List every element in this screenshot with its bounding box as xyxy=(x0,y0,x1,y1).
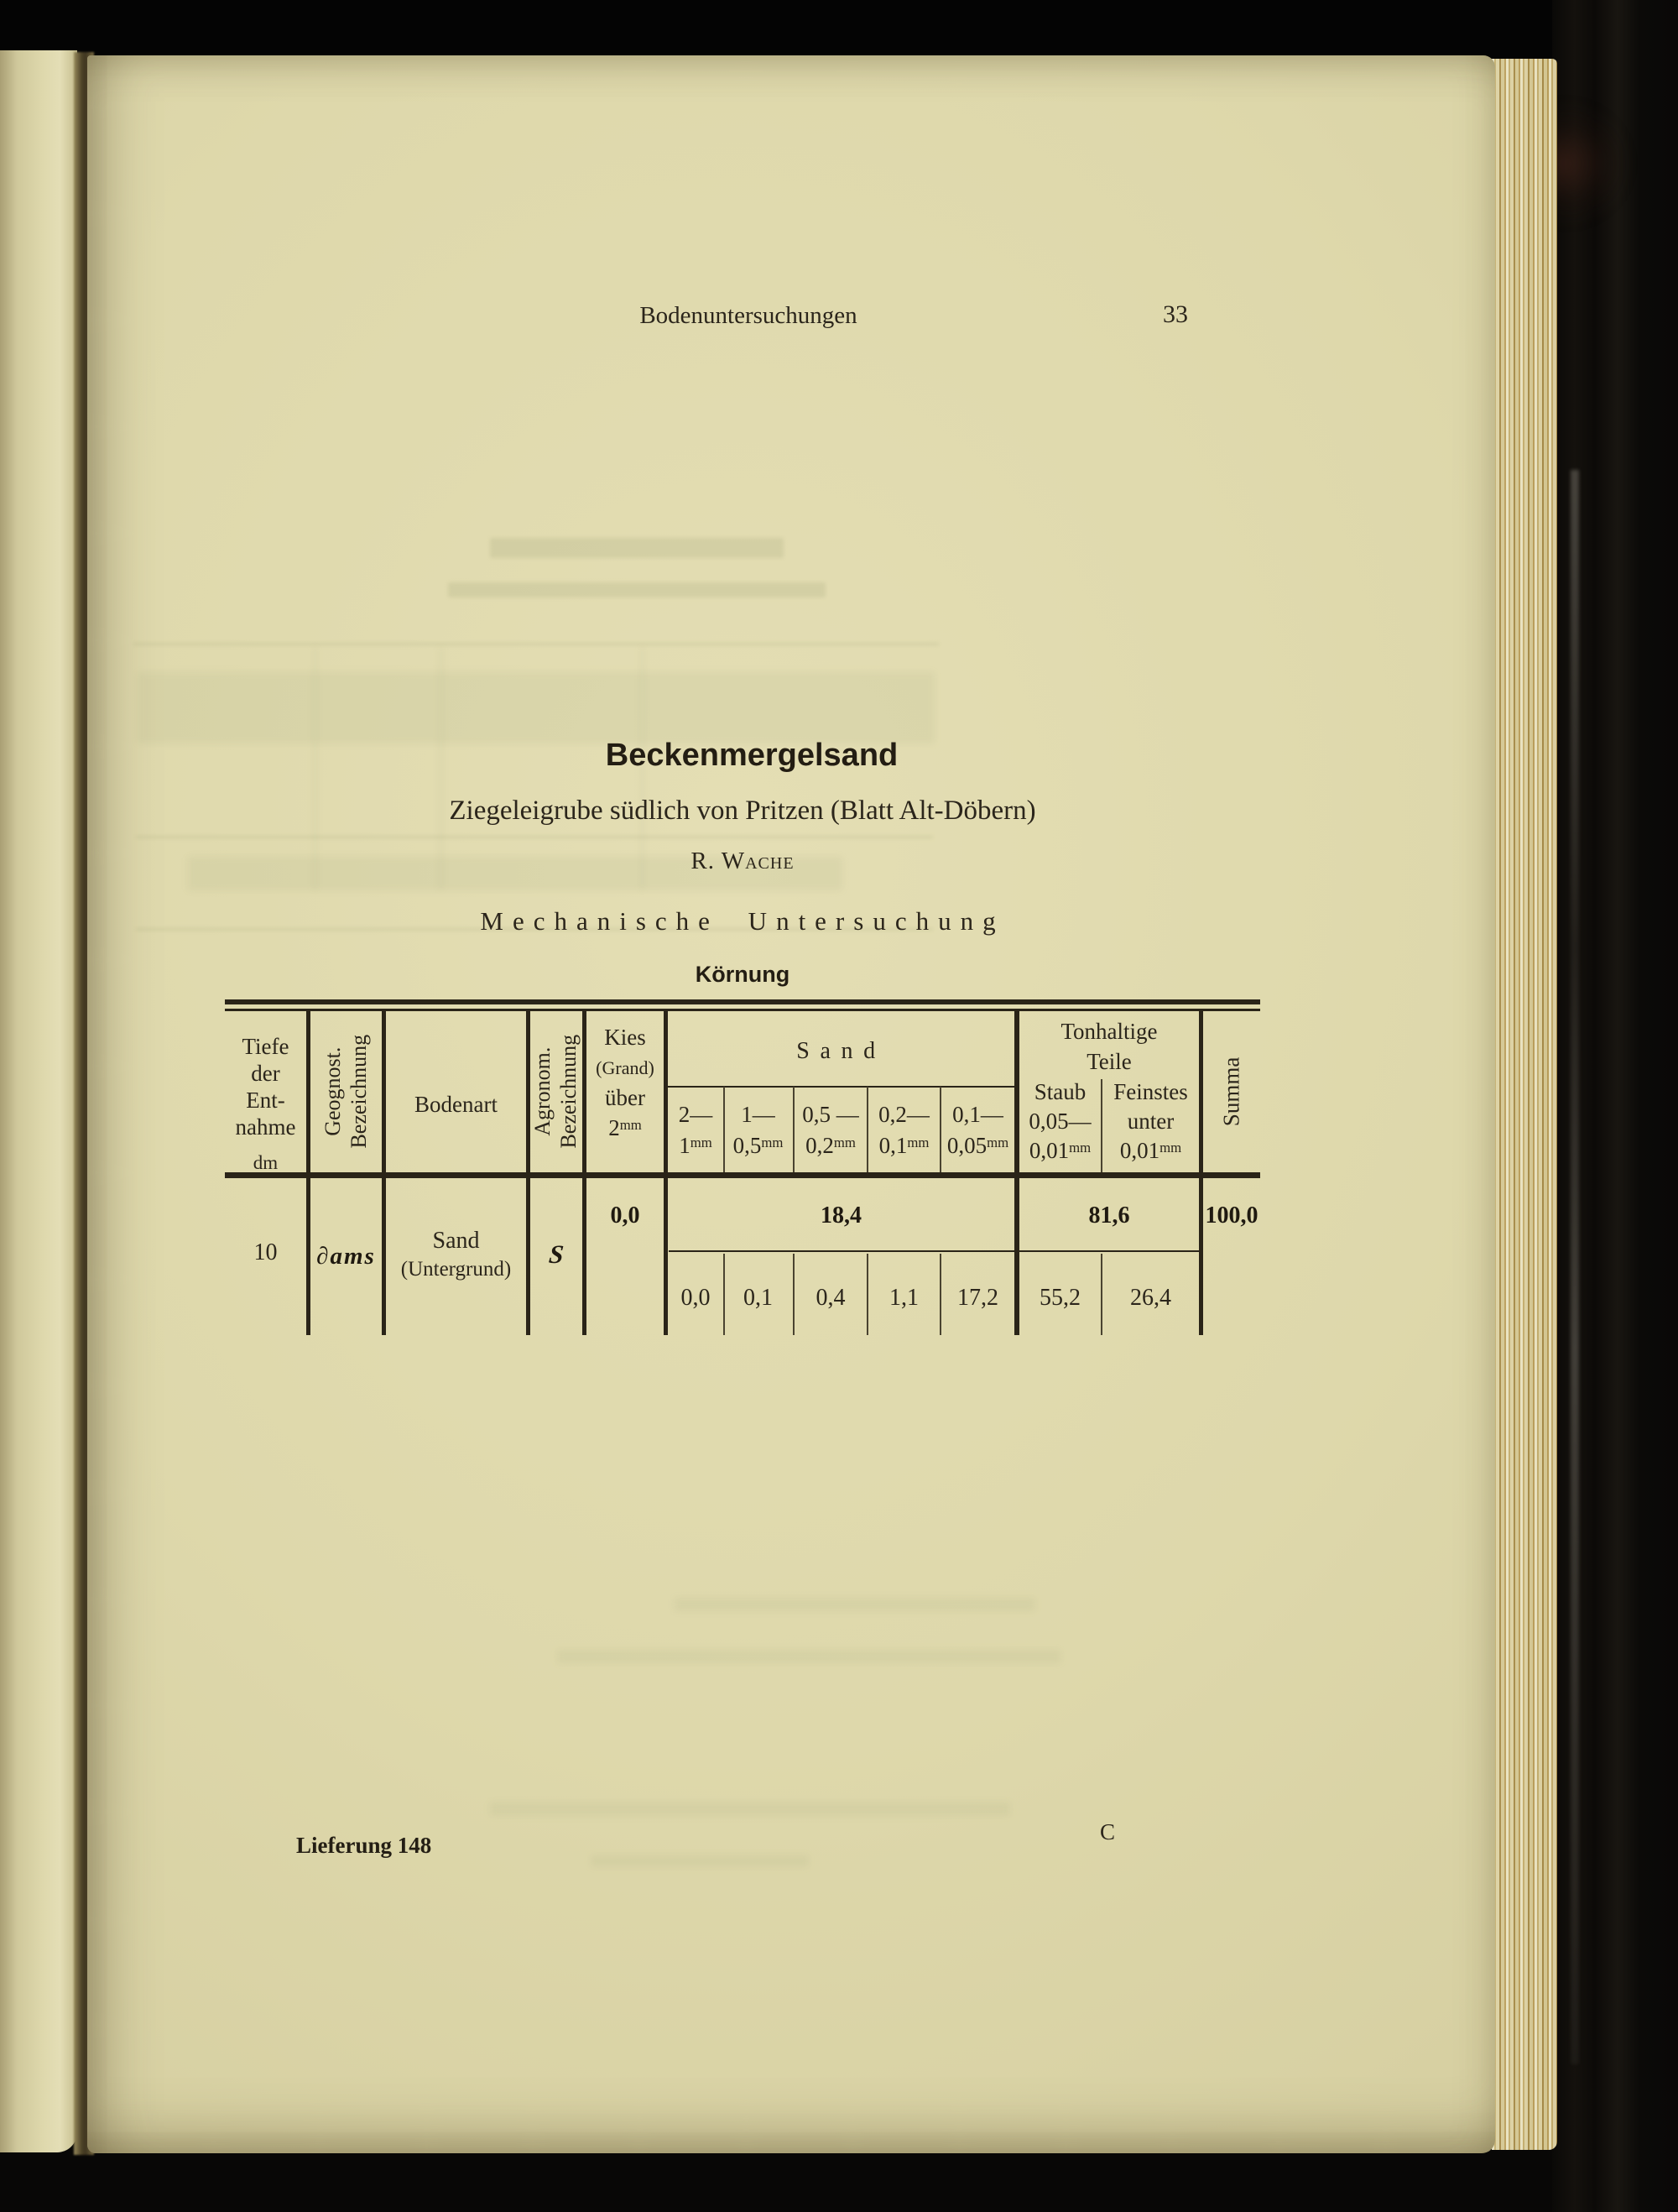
header-depth-unit: dm xyxy=(225,1152,306,1174)
sand-sub-to: 0,2 xyxy=(805,1133,834,1158)
page-number: 33 xyxy=(1163,300,1188,329)
previous-page-edge xyxy=(0,50,77,2152)
book-cover-highlight xyxy=(1571,470,1579,2064)
bleedthrough-block xyxy=(138,672,935,743)
sand-subtotal-rule xyxy=(669,1250,1014,1252)
header-geognost-line: Bezeichnung xyxy=(347,1035,373,1149)
page-stack-fore-edge xyxy=(1492,59,1557,2150)
ton-group-line: Teile xyxy=(1019,1046,1199,1077)
row-sand-value: 0,0 xyxy=(668,1285,723,1312)
header-kies-line: über xyxy=(586,1085,664,1111)
header-sand-sub: 0,5 — 0,2mm xyxy=(795,1102,867,1159)
header-geognost: Geognost. Bezeichnung xyxy=(310,1011,382,1172)
kies-size-value: 2 xyxy=(608,1115,620,1140)
sand-sub-unit: mm xyxy=(834,1135,856,1150)
bleedthrough-mark xyxy=(557,1650,1060,1663)
sand-sub-from: 0,5 — xyxy=(795,1102,867,1128)
header-agronom-line: Bezeichnung xyxy=(556,1035,582,1149)
ton-subtotal-rule xyxy=(1019,1250,1199,1252)
staub-line: Staub xyxy=(1019,1077,1101,1107)
bleedthrough-mark xyxy=(448,582,826,597)
bleedthrough-mark xyxy=(675,1598,1035,1611)
row-geognost-symbol: ∂ams xyxy=(310,1243,382,1270)
sand-sub-from: 0,2— xyxy=(868,1102,940,1128)
header-depth-line: Tiefe xyxy=(225,1033,306,1060)
staub-line: 0,05— xyxy=(1019,1107,1101,1136)
book-photograph: Bodenuntersuchungen 33 Beckenmergelsand … xyxy=(0,0,1678,2212)
header-kies-size: 2mm xyxy=(586,1115,664,1141)
header-sand-sub: 0,1— 0,05mm xyxy=(941,1102,1014,1159)
sand-sub-unit: mm xyxy=(907,1135,929,1150)
sand-sub-to: 0,05 xyxy=(947,1133,987,1158)
header-feinstes: Feinstes unter 0,01mm xyxy=(1102,1077,1199,1168)
section-heading: Mechanische Untersuchung xyxy=(449,906,1036,936)
header-depth: Tiefe der Ent- nahme xyxy=(225,1033,306,1140)
sand-sub-to: 0,1 xyxy=(879,1133,908,1158)
bleedthrough-mark xyxy=(490,538,784,558)
bleedthrough-rule xyxy=(440,647,442,890)
header-kies-line: (Grand) xyxy=(586,1057,664,1079)
row-depth: 10 xyxy=(225,1239,306,1266)
header-staub: Staub 0,05— 0,01mm xyxy=(1019,1077,1101,1168)
sand-group-underline xyxy=(667,1086,1014,1088)
kies-size-unit: mm xyxy=(620,1117,642,1133)
feinstes-unit: mm xyxy=(1159,1140,1181,1156)
staub-line: 0,01 xyxy=(1029,1138,1069,1163)
row-summa-value: 100,0 xyxy=(1203,1203,1260,1229)
scanned-page: Bodenuntersuchungen 33 Beckenmergelsand … xyxy=(87,55,1495,2153)
row-sand-value: 17,2 xyxy=(941,1285,1014,1312)
sand-sub-to: 0,5 xyxy=(733,1133,762,1158)
header-agronom: Agronom. Bezeichnung xyxy=(530,1011,582,1172)
bleedthrough-rule xyxy=(133,643,939,645)
row-sand-total: 18,4 xyxy=(668,1203,1014,1229)
summa-label: Summa xyxy=(1218,1057,1245,1127)
header-depth-line: Ent- xyxy=(225,1087,306,1114)
sand-sub-unit: mm xyxy=(987,1135,1008,1150)
row-agronom-symbol: S xyxy=(529,1239,584,1270)
sand-sub-from: 0,1— xyxy=(941,1102,1014,1128)
header-sand-sub: 0,2— 0,1mm xyxy=(868,1102,940,1159)
header-kies-line: Kies xyxy=(586,1025,664,1051)
table-header-bottom-rule xyxy=(225,1172,1260,1178)
row-ton-value: 55,2 xyxy=(1019,1285,1101,1312)
header-sand-sub: 2— 1mm xyxy=(668,1102,723,1159)
header-ton-group: Tonhaltige Teile xyxy=(1019,1016,1199,1077)
subsection-heading: Körnung xyxy=(617,962,868,988)
header-depth-line: der xyxy=(225,1060,306,1087)
row-ton-total: 81,6 xyxy=(1019,1203,1199,1229)
header-agronom-line: Agronom. xyxy=(530,1035,556,1149)
sample-title: Beckenmergelsand xyxy=(542,738,961,774)
staub-unit: mm xyxy=(1069,1140,1091,1156)
author-name: R. Wache xyxy=(575,848,910,875)
sample-subtitle: Ziegeleigrube südlich von Pritzen (Blatt… xyxy=(365,796,1120,827)
row-bodenart: Sand xyxy=(386,1228,526,1255)
row-sand-value: 1,1 xyxy=(868,1285,940,1312)
header-kies: Kies (Grand) über 2mm xyxy=(586,1025,664,1141)
row-sand-value: 0,4 xyxy=(795,1285,867,1312)
sand-sub-unit: mm xyxy=(761,1135,783,1150)
feinstes-line: unter xyxy=(1102,1107,1199,1136)
header-depth-line: nahme xyxy=(225,1114,306,1140)
grain-size-table: Tiefe der Ent- nahme dm Geognost. Bezeic… xyxy=(225,999,1260,1337)
signature-mark: C xyxy=(1091,1819,1124,1845)
feinstes-line: Feinstes xyxy=(1102,1077,1199,1107)
header-geognost-line: Geognost. xyxy=(320,1035,347,1149)
table-top-rule-thick xyxy=(225,999,1260,1004)
row-sand-value: 0,1 xyxy=(725,1285,791,1312)
row-bodenart-note: (Untergrund) xyxy=(386,1258,526,1281)
column-rule xyxy=(382,1011,386,1335)
header-sand-group: Sand xyxy=(668,1038,1014,1065)
bleedthrough-mark xyxy=(490,1802,1010,1816)
bleedthrough-rule xyxy=(136,836,933,838)
ton-group-line: Tonhaltige xyxy=(1019,1016,1199,1046)
sand-sub-from: 2— xyxy=(668,1102,723,1128)
bleedthrough-mark xyxy=(591,1855,809,1867)
bleedthrough-rule xyxy=(314,647,316,890)
sand-sub-from: 1— xyxy=(725,1102,791,1128)
sand-sub-to: 1 xyxy=(679,1133,690,1158)
running-title: Bodenuntersuchungen xyxy=(581,302,916,330)
row-kies-value: 0,0 xyxy=(586,1203,664,1229)
header-summa: Summa xyxy=(1203,1011,1260,1172)
header-sand-sub: 1— 0,5mm xyxy=(725,1102,791,1159)
edition-mark: Lieferung 148 xyxy=(296,1833,431,1859)
feinstes-line: 0,01 xyxy=(1120,1138,1159,1163)
sand-sub-unit: mm xyxy=(690,1135,712,1150)
row-ton-value: 26,4 xyxy=(1102,1285,1199,1312)
header-bodenart: Bodenart xyxy=(386,1092,526,1118)
